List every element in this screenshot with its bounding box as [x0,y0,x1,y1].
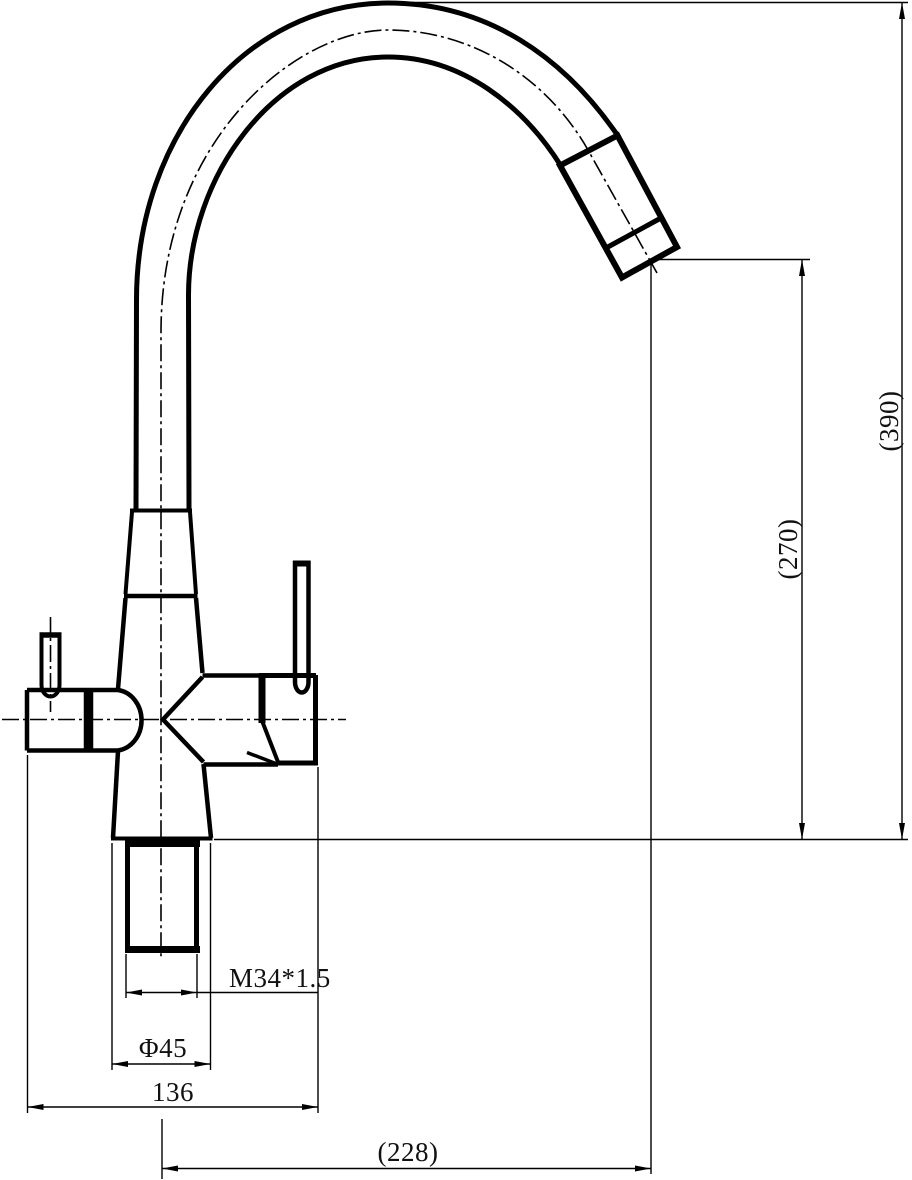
dim-label-outlet-height: (270) [773,519,803,580]
arrowhead-icon [195,1061,211,1067]
arrowhead-icon [112,1061,128,1067]
spout-outer-wall [136,3,618,509]
dim-label-outlet-reach: (228) [378,1137,439,1167]
body-left-edge-upper [118,598,126,689]
drawing-canvas: (390) (270) M34*1.5 Φ45 136 (228) [0,0,912,1180]
arrowhead-icon [181,990,197,996]
aerator-body [560,136,677,278]
arrowhead-icon [899,823,905,840]
arrowhead-icon [162,1166,178,1172]
dimension-labels: (390) (270) M34*1.5 Φ45 136 (228) [139,391,904,1167]
body-right-edge-lower [204,764,212,838]
sprayer-split-line [263,722,279,762]
arrowhead-icon [799,260,805,277]
aerator-head [560,136,677,278]
aerator-tip-ring [606,218,661,248]
spout-neck-left-edge [126,512,133,594]
spout-gooseneck [124,3,618,596]
body-left-edge-lower [113,751,118,838]
arrowhead-icon [28,1104,44,1110]
dim-label-overall-width: 136 [152,1077,194,1107]
dim-label-base-diameter: Φ45 [139,1033,187,1063]
main-axis-centerline [161,30,657,957]
dim-label-thread: M34*1.5 [229,963,331,993]
spout-inner-wall [189,57,562,509]
arrowhead-icon [799,823,805,840]
arrowhead-icon [302,1104,318,1110]
arrowhead-icon [126,990,142,996]
body-right-edge-upper [196,598,203,673]
dim-label-overall-height: (390) [874,391,904,452]
spout-neck-right-edge [190,512,196,594]
arrowhead-icon [899,3,905,20]
arrowhead-icon [635,1166,651,1172]
faucet-technical-drawing: (390) (270) M34*1.5 Φ45 136 (228) [0,0,912,1180]
